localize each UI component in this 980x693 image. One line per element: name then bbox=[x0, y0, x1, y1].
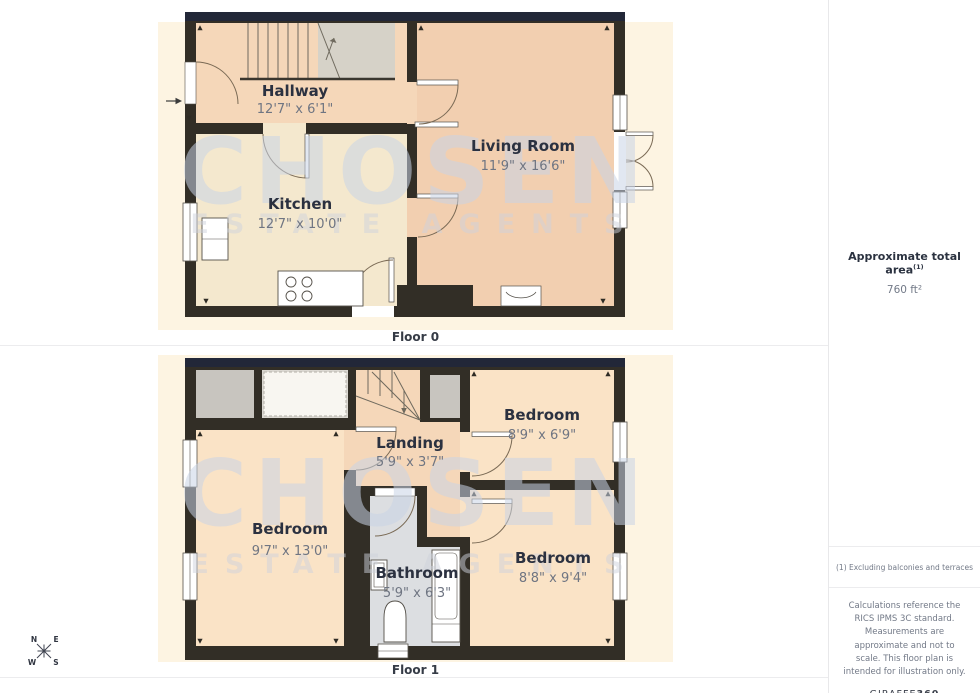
total-area-block: Approximate total area(1) 760 ft² bbox=[829, 250, 980, 296]
brand-number: 360 bbox=[916, 689, 939, 693]
compass-star-icon bbox=[37, 644, 51, 658]
footnote: (1) Excluding balconies and terraces bbox=[829, 546, 980, 588]
room-dims-kitchen: 12'7" x 10'0" bbox=[258, 217, 343, 232]
floor0-plan: CHOSEN ESTATE AGENTS Hallway 12'7" x 6'1… bbox=[158, 12, 673, 330]
stove-icon bbox=[278, 271, 363, 306]
giraffe360-logo: GIRAFFE360 bbox=[842, 688, 967, 693]
wardrobe-icon bbox=[264, 372, 346, 416]
closet-floor bbox=[196, 370, 254, 418]
floor1-label: Floor 1 bbox=[158, 663, 673, 677]
compass-east: E bbox=[53, 635, 58, 644]
compass-north: N bbox=[31, 635, 37, 644]
floor0-label: Floor 0 bbox=[158, 330, 673, 344]
section-divider bbox=[0, 345, 828, 346]
total-area-label: Approximate total area(1) bbox=[829, 250, 980, 277]
total-area-value: 760 ft² bbox=[829, 284, 980, 296]
compass-rose: N E W S bbox=[24, 632, 68, 674]
compass-west: W bbox=[28, 658, 37, 667]
room-label-bedroom-left: Bedroom bbox=[252, 520, 328, 538]
room-label-hallway: Hallway bbox=[262, 82, 328, 100]
room-label-living: Living Room bbox=[471, 137, 575, 155]
disclaimer-block: Calculations reference the RICS IPMS 3C … bbox=[829, 588, 980, 677]
room-dims-landing: 5'9" x 3'7" bbox=[376, 455, 444, 470]
fireplace-icon bbox=[501, 286, 541, 306]
room-dims-bathroom: 5'9" x 6'3" bbox=[383, 586, 451, 601]
room-label-bathroom: Bathroom bbox=[375, 564, 458, 582]
room-dims-hallway: 12'7" x 6'1" bbox=[257, 102, 333, 117]
disclaimer-text: Calculations reference the RICS IPMS 3C … bbox=[842, 600, 967, 679]
entry-arrow-icon bbox=[166, 98, 182, 104]
floor1-plan: CHOSEN ESTATE AGENTS Bedroom 8'9" x 6'9"… bbox=[158, 352, 673, 664]
room-dims-bedroom-topright: 8'9" x 6'9" bbox=[508, 428, 576, 443]
room-label-bedroom-bottomright: Bedroom bbox=[515, 549, 591, 567]
room-label-landing: Landing bbox=[376, 434, 444, 452]
room-dims-bedroom-bottomright: 8'8" x 9'4" bbox=[519, 571, 587, 586]
total-area-footnote-ref: (1) bbox=[913, 263, 923, 271]
brand-name: GIRAFFE bbox=[870, 689, 917, 693]
floorplan-page: CHOSEN ESTATE AGENTS Hallway 12'7" x 6'1… bbox=[0, 0, 980, 693]
floor0-top-wall-band bbox=[185, 12, 625, 21]
room-label-bedroom-topright: Bedroom bbox=[504, 406, 580, 424]
compass-south: S bbox=[53, 658, 58, 667]
toilet-icon bbox=[384, 601, 406, 642]
stairwell-floor bbox=[356, 370, 420, 422]
cupboard-floor bbox=[430, 375, 460, 418]
info-panel: Approximate total area(1) 760 ft² (1) Ex… bbox=[828, 0, 980, 693]
room-label-kitchen: Kitchen bbox=[268, 195, 332, 213]
total-area-label-text: Approximate total area bbox=[848, 250, 961, 277]
wall-jog bbox=[397, 285, 473, 306]
room-dims-bedroom-left: 9'7" x 13'0" bbox=[252, 544, 328, 559]
room-dims-living: 11'9" x 16'6" bbox=[481, 159, 566, 174]
floor1-top-wall-band bbox=[185, 358, 625, 367]
